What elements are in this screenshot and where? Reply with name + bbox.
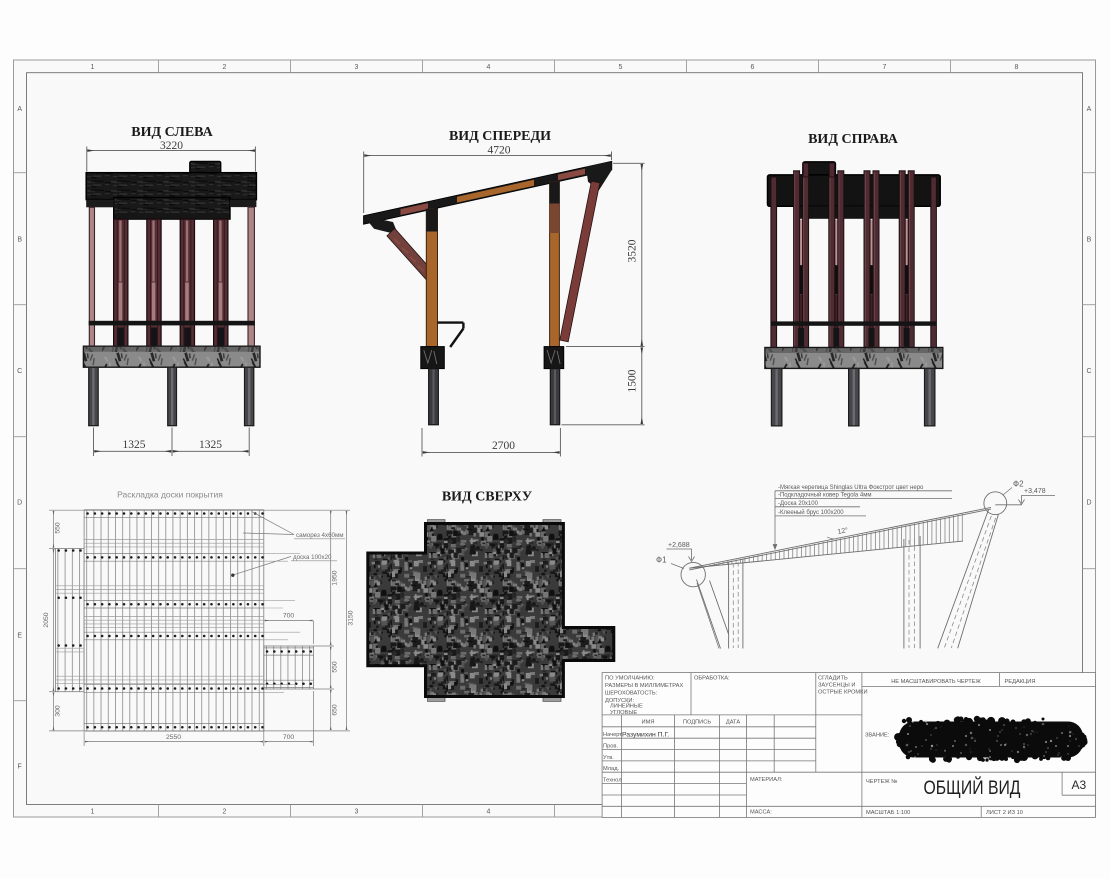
svg-text:A: A — [17, 106, 22, 113]
svg-text:ОБРАБОТКА:: ОБРАБОТКА: — [694, 676, 730, 682]
svg-text:ЛИСТ 2 ИЗ 10: ЛИСТ 2 ИЗ 10 — [986, 810, 1023, 816]
svg-text:Начерт: Начерт — [603, 732, 622, 738]
svg-text:4720: 4720 — [488, 145, 511, 157]
svg-text:ВИД СПЕРЕДИ: ВИД СПЕРЕДИ — [449, 129, 551, 144]
svg-text:ПО УМОЛЧАНИЮ:: ПО УМОЛЧАНИЮ: — [605, 676, 655, 682]
svg-text:8: 8 — [1015, 64, 1019, 71]
svg-text:B: B — [17, 237, 22, 244]
svg-text:Пров.: Пров. — [603, 744, 618, 750]
svg-text:Утв.: Утв. — [603, 755, 614, 761]
svg-text:РЕДАКЦИЯ: РЕДАКЦИЯ — [1005, 679, 1036, 685]
svg-text:1: 1 — [91, 64, 95, 71]
svg-text:550: 550 — [332, 661, 339, 673]
svg-text:2: 2 — [223, 64, 227, 71]
svg-text:-Подкладочный ковер Tegola 4мм: -Подкладочный ковер Tegola 4мм — [778, 492, 871, 499]
svg-text:300: 300 — [55, 705, 62, 717]
svg-text:700: 700 — [283, 613, 295, 620]
svg-text:2700: 2700 — [492, 440, 515, 452]
svg-text:1: 1 — [91, 809, 95, 816]
svg-text:1500: 1500 — [627, 369, 639, 392]
svg-text:A3: A3 — [1071, 778, 1086, 792]
svg-text:3: 3 — [355, 809, 359, 816]
svg-text:F: F — [18, 764, 22, 771]
svg-text:700: 700 — [283, 734, 295, 741]
svg-text:Ф2: Ф2 — [1013, 480, 1024, 489]
svg-text:7: 7 — [883, 64, 887, 71]
svg-text:МАТЕРИАЛ:: МАТЕРИАЛ: — [750, 777, 783, 783]
svg-text:Млад.: Млад. — [603, 766, 620, 772]
svg-text:саморез 4х60мм: саморез 4х60мм — [296, 532, 343, 539]
svg-text:+3,478: +3,478 — [1024, 488, 1046, 495]
svg-text:ВИД СПРАВА: ВИД СПРАВА — [808, 132, 899, 147]
svg-text:4: 4 — [487, 64, 491, 71]
svg-text:D: D — [17, 500, 22, 507]
svg-text:-Доска 20х100: -Доска 20х100 — [778, 501, 819, 507]
svg-text:Ф1: Ф1 — [656, 556, 667, 565]
svg-text:2: 2 — [223, 809, 227, 816]
svg-text:ОСТРЫЕ КРОМКИ: ОСТРЫЕ КРОМКИ — [818, 690, 868, 696]
svg-text:2550: 2550 — [166, 734, 181, 741]
svg-text:ВИД СВЕРХУ: ВИД СВЕРХУ — [442, 490, 532, 505]
svg-text:C: C — [17, 368, 22, 375]
svg-text:ЛИНЕЙНЫЕ: ЛИНЕЙНЫЕ — [610, 702, 643, 710]
svg-text:3: 3 — [355, 64, 359, 71]
svg-text:ИМЯ: ИМЯ — [642, 720, 655, 726]
svg-text:ОБЩИЙ ВИД: ОБЩИЙ ВИД — [924, 777, 1021, 799]
svg-text:E: E — [17, 633, 22, 640]
svg-text:4: 4 — [487, 809, 491, 816]
svg-text:ДАТА: ДАТА — [726, 720, 740, 726]
svg-text:МАСШТАБ 1:100: МАСШТАБ 1:100 — [866, 810, 910, 816]
svg-text:Разумихин П.Г.: Разумихин П.Г. — [622, 732, 669, 739]
svg-text:СГЛАДИТЬ: СГЛАДИТЬ — [818, 676, 848, 682]
svg-text:МАССА:: МАССА: — [750, 810, 772, 816]
svg-text:2050: 2050 — [43, 612, 50, 627]
svg-text:ЗАУСЕНЦЫ И: ЗАУСЕНЦЫ И — [818, 683, 856, 689]
svg-text:650: 650 — [332, 704, 339, 716]
svg-text:ПОДПИСЬ: ПОДПИСЬ — [683, 720, 712, 726]
svg-text:Технол: Технол — [603, 778, 622, 784]
svg-text:ЧЕРТЕЖ №: ЧЕРТЕЖ № — [866, 779, 897, 785]
svg-text:5: 5 — [619, 64, 623, 71]
svg-text:доска 100х20: доска 100х20 — [293, 554, 332, 561]
svg-text:1325: 1325 — [199, 439, 222, 451]
svg-text:550: 550 — [55, 522, 62, 534]
svg-text:B: B — [1087, 237, 1092, 244]
svg-text:РАЗМЕРЫ В МИЛЛИМЕТРАХ: РАЗМЕРЫ В МИЛЛИМЕТРАХ — [605, 683, 683, 689]
svg-text:НЕ МАСШТАБИРОВАТЬ ЧЕРТЕЖ: НЕ МАСШТАБИРОВАТЬ ЧЕРТЕЖ — [891, 679, 981, 685]
svg-text:D: D — [1086, 500, 1091, 507]
svg-text:Раскладка доски покрытия: Раскладка доски покрытия — [117, 490, 223, 500]
svg-text:УГЛОВЫЕ: УГЛОВЫЕ — [610, 710, 637, 716]
svg-text:A: A — [1087, 106, 1092, 113]
svg-text:+2,688: +2,688 — [668, 542, 690, 549]
svg-text:ШЕРОХОВАТОСТЬ:: ШЕРОХОВАТОСТЬ: — [605, 691, 658, 697]
svg-text:ЗВАНИЕ:: ЗВАНИЕ: — [865, 733, 890, 739]
svg-text:1325: 1325 — [123, 439, 146, 451]
svg-text:-Клееный брус 100х200: -Клееный брус 100х200 — [778, 509, 844, 516]
svg-text:3150: 3150 — [348, 610, 355, 625]
svg-text:-Мягкая черепица Shinglas Ultr: -Мягкая черепица Shinglas Ultra Фокстрот… — [778, 485, 924, 491]
svg-text:6: 6 — [751, 64, 755, 71]
svg-text:ВИД СЛЕВА: ВИД СЛЕВА — [131, 125, 213, 140]
svg-text:C: C — [1086, 368, 1091, 375]
svg-text:3520: 3520 — [627, 239, 639, 262]
svg-text:1950: 1950 — [332, 570, 339, 585]
